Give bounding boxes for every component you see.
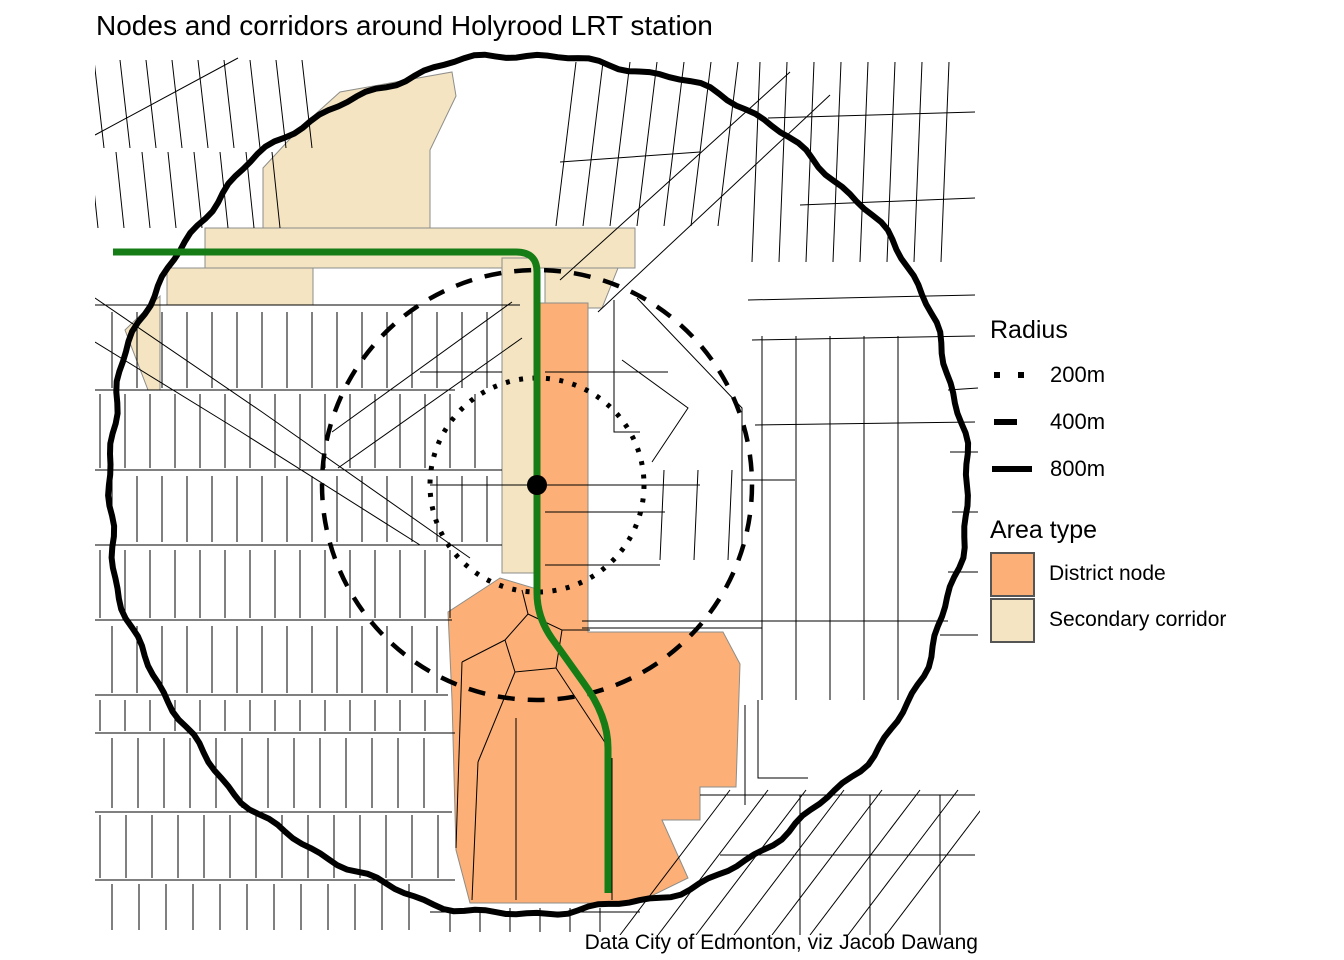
solid-line-icon [990, 454, 1034, 484]
legend-item-district-node: District node [990, 551, 1226, 597]
secondary-corridor-swatch [990, 598, 1035, 643]
legend-label-400m: 400m [1050, 409, 1105, 435]
legend-item-200m: 200m [990, 351, 1105, 398]
legend-area-title: Area type [990, 516, 1226, 545]
legend-item-800m: 800m [990, 445, 1105, 492]
dashed-line-icon [990, 407, 1034, 437]
caption: Data City of Edmonton, viz Jacob Dawang [585, 931, 978, 955]
legend-radius: Radius 200m 400m 800m [990, 316, 1105, 492]
legend-label-secondary-corridor: Secondary corridor [1049, 608, 1226, 632]
map-visualization: Nodes and corridors around Holyrood LRT … [0, 0, 1344, 960]
legend-label-district-node: District node [1049, 562, 1166, 586]
legend-label-800m: 800m [1050, 456, 1105, 482]
district-node-area [448, 303, 740, 903]
dotted-line-icon [990, 360, 1034, 390]
legend-area-type: Area type District node Secondary corrid… [990, 516, 1226, 643]
legend-item-400m: 400m [990, 398, 1105, 445]
map-canvas [0, 0, 1344, 960]
secondary-corridor-area [167, 268, 313, 305]
legend-item-secondary-corridor: Secondary corridor [990, 597, 1226, 643]
secondary-corridor-area [205, 228, 635, 268]
legend-label-200m: 200m [1050, 362, 1105, 388]
area-fills-layer [125, 72, 740, 903]
district-node-swatch [990, 552, 1035, 597]
legend-radius-title: Radius [990, 316, 1105, 345]
page-title: Nodes and corridors around Holyrood LRT … [96, 10, 713, 42]
station-dot [527, 475, 547, 495]
